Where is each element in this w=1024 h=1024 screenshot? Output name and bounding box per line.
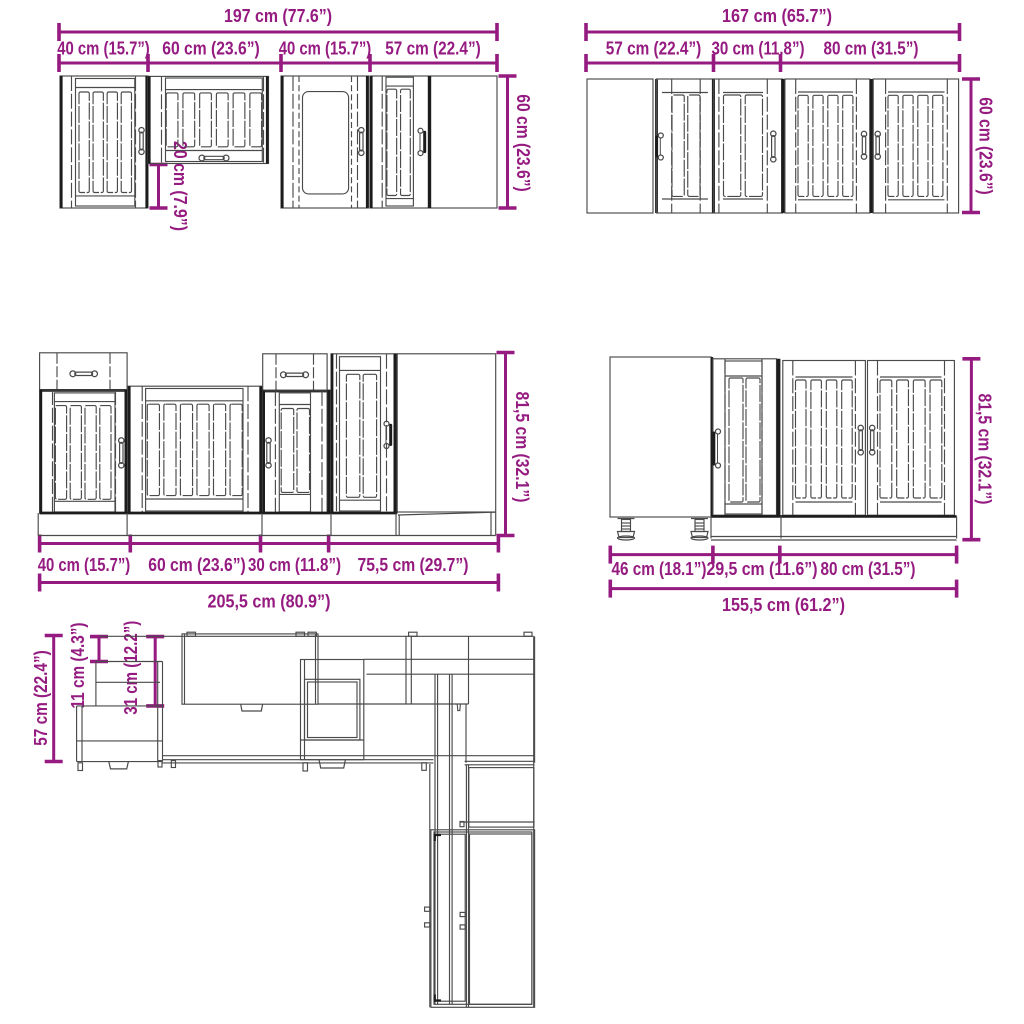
svg-text:155,5 cm (61.2”): 155,5 cm (61.2”) xyxy=(722,594,845,615)
svg-text:30 cm (11.8”): 30 cm (11.8”) xyxy=(712,38,805,59)
svg-text:46 cm (18.1”): 46 cm (18.1”) xyxy=(612,558,707,579)
svg-text:60 cm (23.6”): 60 cm (23.6”) xyxy=(513,94,534,192)
svg-text:57 cm (22.4”): 57 cm (22.4”) xyxy=(606,38,702,59)
svg-text:60 cm (23.6”): 60 cm (23.6”) xyxy=(148,554,246,575)
svg-text:80 cm (31.5”): 80 cm (31.5”) xyxy=(821,558,916,579)
svg-text:57 cm (22.4”): 57 cm (22.4”) xyxy=(30,650,51,746)
svg-text:197 cm (77.6”): 197 cm (77.6”) xyxy=(224,5,332,26)
svg-text:40 cm (15.7”): 40 cm (15.7”) xyxy=(279,38,372,59)
svg-text:31 cm (12.2”): 31 cm (12.2”) xyxy=(120,621,141,715)
svg-text:81,5 cm (32.1”): 81,5 cm (32.1”) xyxy=(974,394,995,505)
svg-text:40 cm (15.7”): 40 cm (15.7”) xyxy=(38,554,131,575)
svg-text:11 cm (4.3”): 11 cm (4.3”) xyxy=(67,623,88,709)
svg-text:57 cm (22.4”): 57 cm (22.4”) xyxy=(385,38,481,59)
svg-text:60 cm (23.6”): 60 cm (23.6”) xyxy=(975,97,996,195)
svg-text:75,5 cm (29.7”): 75,5 cm (29.7”) xyxy=(358,554,469,575)
svg-text:29,5 cm (11.6”): 29,5 cm (11.6”) xyxy=(707,558,818,579)
svg-text:80 cm (31.5”): 80 cm (31.5”) xyxy=(824,38,919,59)
svg-text:167 cm (65.7”): 167 cm (65.7”) xyxy=(722,5,832,26)
svg-text:81,5 cm (32.1”): 81,5 cm (32.1”) xyxy=(512,392,533,503)
svg-text:205,5 cm (80.9”): 205,5 cm (80.9”) xyxy=(208,591,331,612)
svg-text:40 cm (15.7”): 40 cm (15.7”) xyxy=(57,38,150,59)
svg-text:60 cm (23.6”): 60 cm (23.6”) xyxy=(162,38,260,59)
svg-text:30 cm (11.8”): 30 cm (11.8”) xyxy=(248,554,341,575)
svg-text:20 cm (7.9”): 20 cm (7.9”) xyxy=(170,141,191,231)
